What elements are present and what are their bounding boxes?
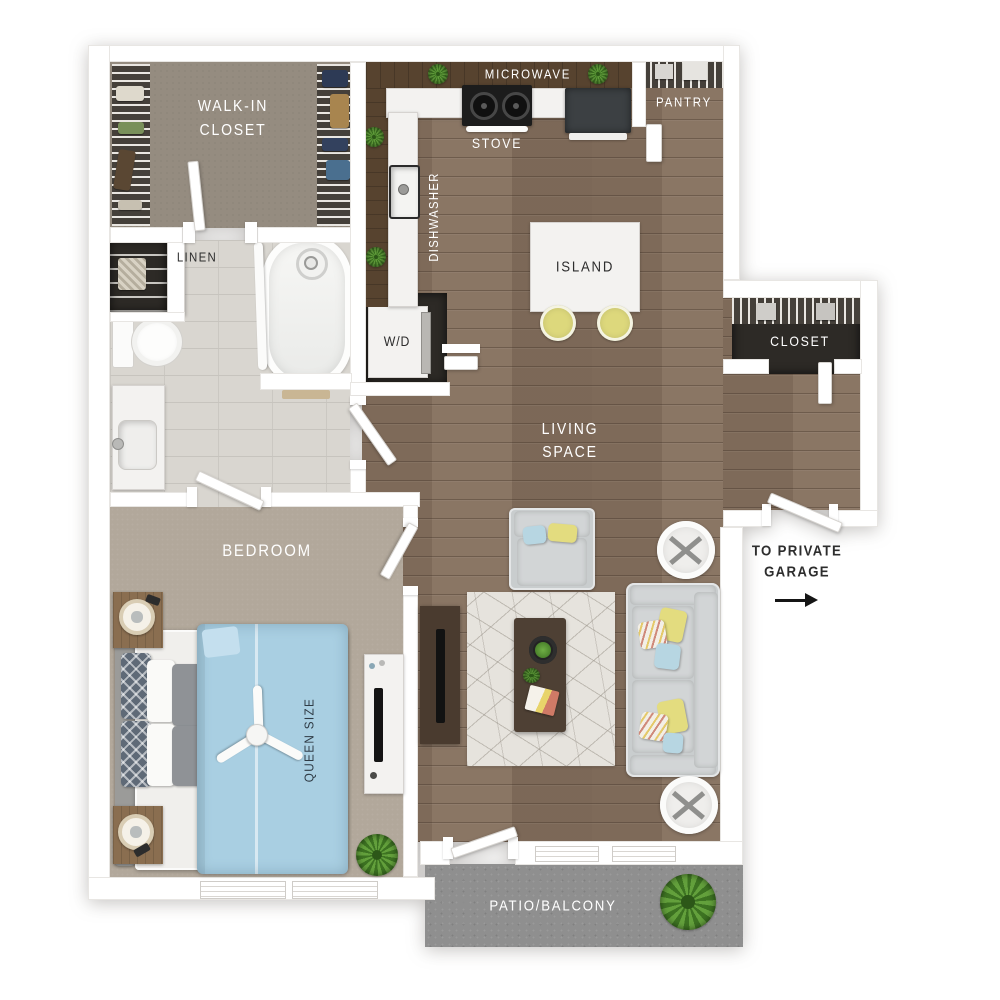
bed-duvet bbox=[197, 624, 348, 874]
hanging-clothes bbox=[118, 122, 144, 134]
wall-living-right bbox=[720, 527, 743, 858]
bedroom-plant bbox=[356, 834, 398, 876]
arrow-shaft bbox=[775, 599, 807, 602]
apartment-plan: WALK-IN CLOSET LINEN MICROWAVE STOVE PAN… bbox=[0, 0, 1000, 1000]
label-island: ISLAND bbox=[556, 259, 614, 276]
door-jamb bbox=[350, 460, 366, 469]
table-plant bbox=[523, 668, 540, 683]
refrigerator-ledge bbox=[569, 133, 627, 140]
hanging-clothes bbox=[116, 86, 144, 101]
wall-extension-right bbox=[860, 280, 878, 527]
bowl-greens bbox=[535, 642, 551, 658]
label-walk-in-closet: WALK-IN bbox=[198, 98, 268, 116]
stove-burner bbox=[502, 92, 530, 120]
tub-drain-dot bbox=[304, 256, 318, 270]
label-dishwasher: DISHWASHER bbox=[427, 172, 441, 261]
dryer-door-edge bbox=[421, 312, 431, 374]
label-entry-closet: CLOSET bbox=[770, 333, 830, 349]
bed-pillow-white bbox=[147, 724, 175, 786]
label-garage: GARAGE bbox=[764, 564, 830, 581]
label-linen: LINEN bbox=[177, 250, 217, 265]
wall-laundry-bottom bbox=[350, 382, 450, 396]
garage-arrow-icon bbox=[775, 592, 820, 608]
pantry-stored-item bbox=[655, 64, 673, 79]
table-lamp bbox=[119, 599, 155, 635]
throw-pillow-blue bbox=[522, 525, 547, 545]
hanging-clothes bbox=[118, 200, 142, 210]
counter-plant bbox=[588, 64, 608, 84]
laundry-door bbox=[444, 356, 478, 370]
wall-entry-closet-bottom bbox=[834, 359, 862, 374]
sink-faucet bbox=[398, 184, 409, 195]
throw-pillow-yellow bbox=[547, 523, 577, 543]
duvet-fold bbox=[201, 626, 240, 658]
sofa-back bbox=[694, 592, 718, 768]
door-jamb bbox=[187, 487, 197, 507]
fan-hub bbox=[246, 724, 268, 746]
bed-pillow-white bbox=[147, 660, 175, 722]
label-living-space: SPACE bbox=[542, 444, 597, 462]
wall-left bbox=[88, 45, 110, 900]
wall-closet-divider bbox=[110, 227, 183, 243]
round-side-table bbox=[660, 776, 718, 834]
label-pantry: PANTRY bbox=[656, 95, 712, 110]
bar-stool bbox=[597, 305, 633, 341]
living-window bbox=[535, 846, 599, 862]
dresser-decor bbox=[379, 660, 385, 666]
storage-bin bbox=[330, 94, 349, 128]
wall-extension-top bbox=[723, 280, 878, 298]
entry-closet-shelf bbox=[732, 298, 860, 324]
coffee-table bbox=[514, 618, 566, 732]
door-jamb bbox=[762, 504, 771, 526]
bedroom-window bbox=[200, 881, 286, 899]
throw-pillow-blue bbox=[662, 732, 683, 753]
refrigerator bbox=[565, 88, 631, 133]
door-jamb bbox=[403, 586, 418, 595]
arrow-head bbox=[805, 593, 818, 607]
shelf-box bbox=[757, 303, 776, 320]
wall-linen-bottom bbox=[110, 312, 185, 322]
door-jamb bbox=[245, 222, 257, 243]
storage-box-blue bbox=[326, 160, 350, 180]
dresser-tv bbox=[374, 688, 383, 762]
label-queen-size: QUEEN SIZE bbox=[302, 698, 317, 782]
bedroom-window bbox=[292, 881, 378, 899]
vanity-faucet bbox=[112, 438, 124, 450]
bath-mat bbox=[282, 390, 330, 399]
counter-plant bbox=[364, 127, 384, 147]
label-walk-in-closet: CLOSET bbox=[200, 122, 267, 140]
entry-closet-door bbox=[818, 362, 832, 404]
label-patio-balcony: PATIO/BALCONY bbox=[489, 898, 616, 915]
throw-pillow-blue bbox=[654, 643, 682, 671]
oven-handle bbox=[466, 126, 528, 132]
wall-bedroom-top bbox=[263, 492, 420, 507]
floor-plan-canvas: WALK-IN CLOSET LINEN MICROWAVE STOVE PAN… bbox=[0, 0, 1000, 1000]
door-jamb bbox=[508, 837, 518, 859]
hanging-clothes bbox=[322, 70, 348, 87]
round-side-table bbox=[657, 521, 715, 579]
wall-pantry-stub bbox=[632, 62, 646, 127]
wall-right-upper bbox=[723, 45, 740, 280]
label-bedroom: BEDROOM bbox=[222, 541, 312, 561]
label-microwave: MICROWAVE bbox=[485, 67, 571, 82]
hanging-clothes bbox=[322, 138, 348, 151]
pantry-stored-item bbox=[683, 62, 707, 80]
wall-bath-kitchen bbox=[350, 62, 366, 396]
toilet-bowl bbox=[131, 317, 183, 367]
wall-bedroom-top bbox=[110, 492, 195, 507]
counter-plant bbox=[428, 64, 448, 84]
label-living-space: LIVING bbox=[542, 421, 599, 439]
stove-burner bbox=[470, 92, 498, 120]
television bbox=[436, 629, 445, 723]
wall-entry-closet-bottom bbox=[723, 359, 769, 374]
shelf-box bbox=[816, 303, 835, 320]
living-window bbox=[612, 846, 676, 862]
dresser-decor bbox=[370, 772, 377, 779]
patio-plant bbox=[660, 874, 716, 930]
wall-bedroom-right bbox=[403, 590, 418, 877]
linen-basket bbox=[118, 258, 146, 290]
laundry-door-frame bbox=[442, 344, 480, 353]
wall-closet-divider bbox=[257, 227, 355, 243]
label-washer-dryer: W/D bbox=[384, 333, 411, 349]
label-stove: STOVE bbox=[472, 135, 522, 151]
counter-plant bbox=[366, 247, 386, 267]
dresser-decor bbox=[369, 663, 375, 669]
armchair-seat bbox=[517, 538, 587, 586]
wall-top bbox=[88, 45, 740, 62]
wall-tub-bottom bbox=[260, 373, 352, 390]
bar-stool bbox=[540, 305, 576, 341]
label-garage: TO PRIVATE bbox=[752, 543, 842, 560]
pantry-door bbox=[646, 124, 662, 162]
